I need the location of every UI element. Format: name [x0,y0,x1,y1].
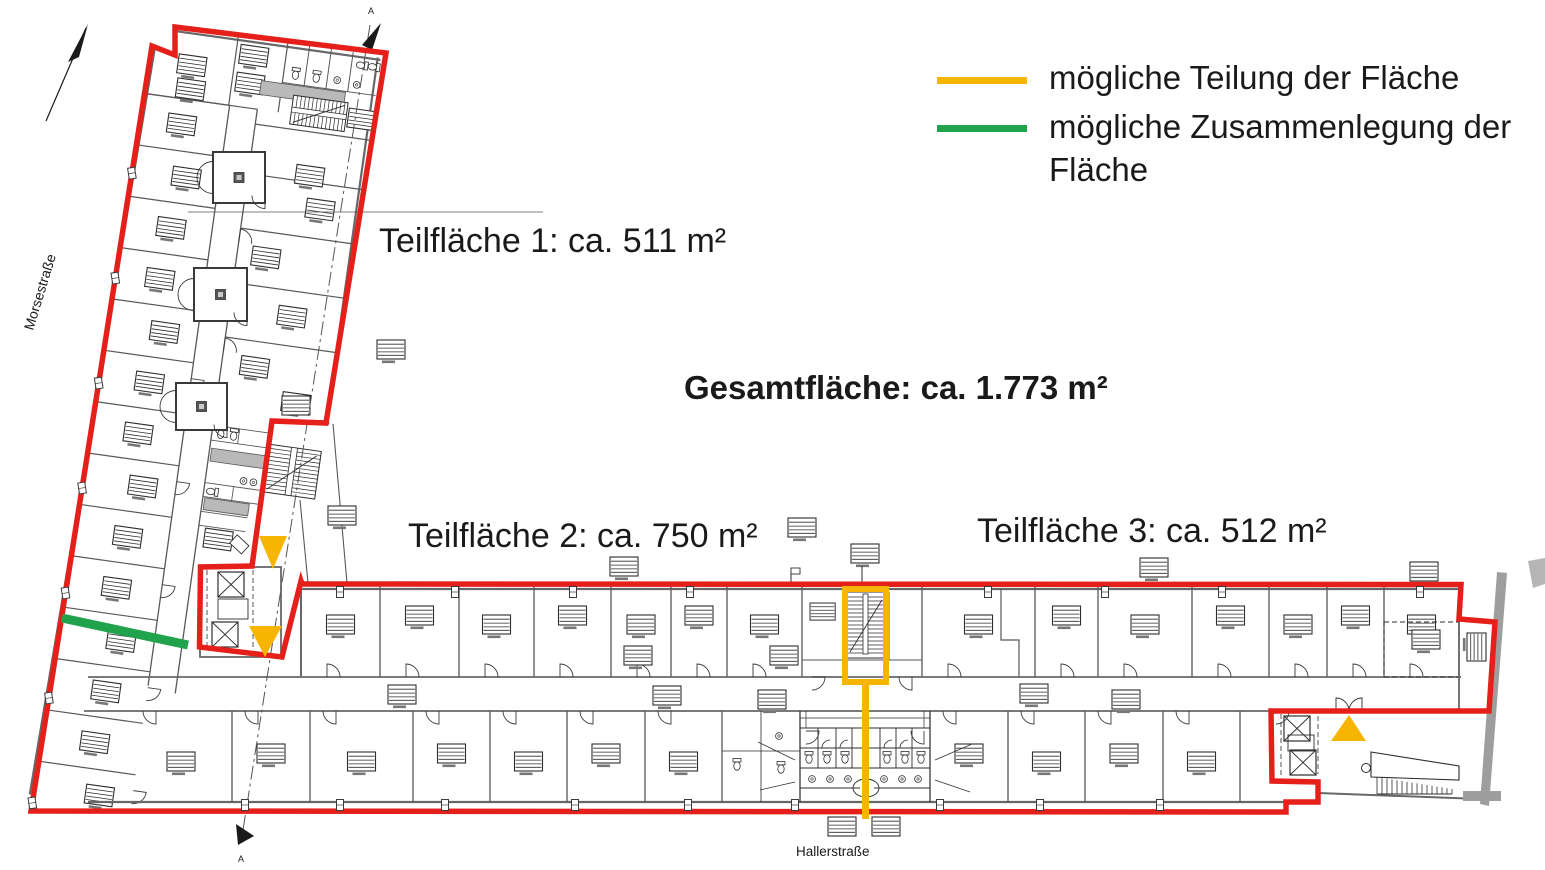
svg-text:Fläche: Fläche [1049,151,1148,188]
svg-text:A: A [368,6,374,16]
svg-text:Hallerstraße: Hallerstraße [796,844,870,859]
svg-text:mögliche Teilung der Fläche: mögliche Teilung der Fläche [1049,59,1459,96]
svg-text:A: A [238,854,244,864]
svg-text:mögliche Zusammenlegung der: mögliche Zusammenlegung der [1049,108,1511,145]
svg-text:Teilfläche 3: ca. 512 m²: Teilfläche 3: ca. 512 m² [977,512,1327,550]
svg-text:Teilfläche 1: ca. 511 m²: Teilfläche 1: ca. 511 m² [379,222,726,260]
svg-text:Teilfläche 2: ca. 750 m²: Teilfläche 2: ca. 750 m² [408,517,758,555]
svg-text:Gesamtfläche: ca. 1.773 m²: Gesamtfläche: ca. 1.773 m² [684,369,1108,406]
